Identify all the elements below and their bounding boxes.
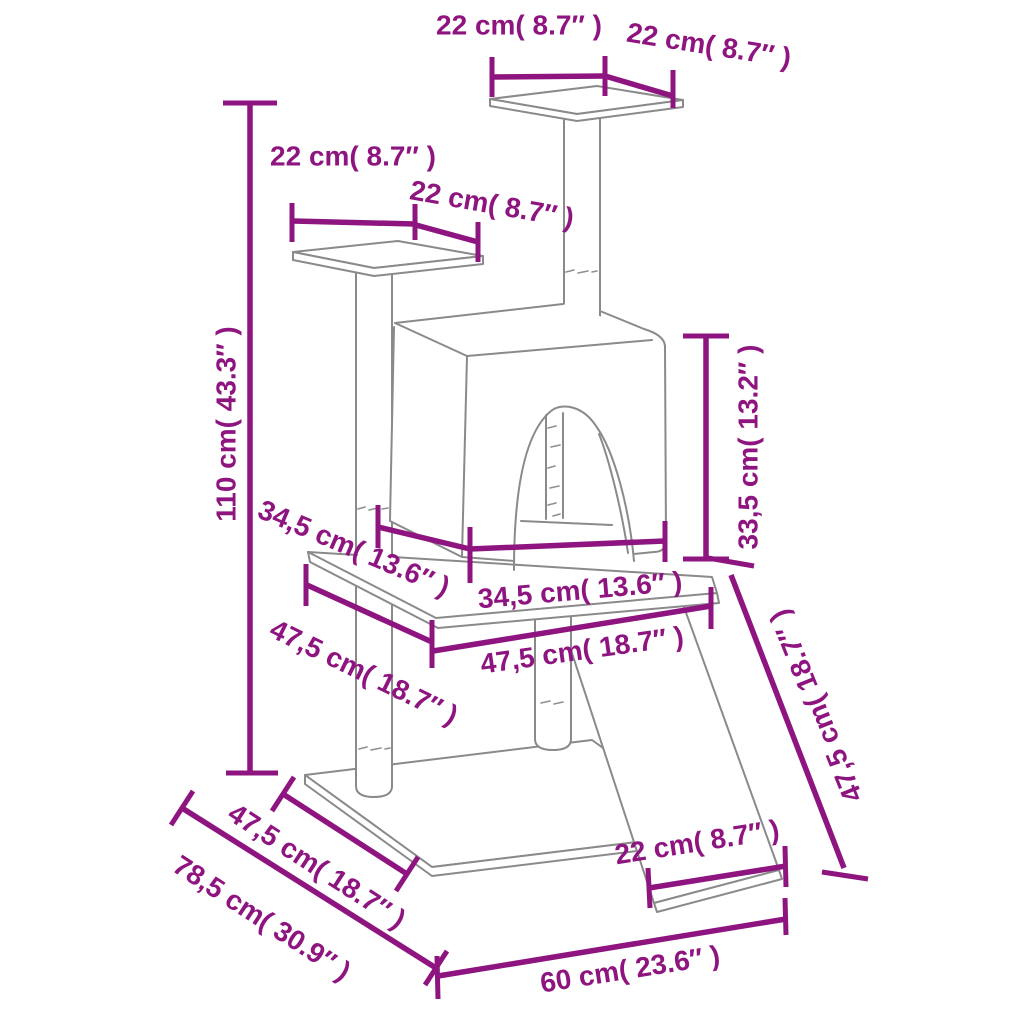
dim-label-left-platform-width: 22 cm( 8.7″ )	[270, 141, 436, 172]
dim-label-top-platform-width: 22 cm( 8.7″ )	[436, 10, 602, 41]
dim-base-width: 60 cm( 23.6″ )	[437, 898, 786, 999]
middle-scratching-post	[535, 598, 571, 750]
cat-tree-dimension-diagram: 22 cm( 8.7″ ) 22 cm( 8.7″ ) 22 cm( 8.7″ …	[0, 0, 1024, 1024]
dim-label-total-height: 110 cm( 43.3″ )	[211, 326, 242, 522]
dim-label-base-width: 60 cm( 23.6″ )	[538, 939, 722, 998]
dim-label-left-platform-depth: 22 cm( 8.7″ )	[408, 174, 577, 233]
dim-label-house-height: 33,5 cm( 13.2″ )	[733, 345, 764, 550]
dim-top-platform-width: 22 cm( 8.7″ )	[436, 10, 605, 98]
cat-house	[389, 304, 667, 570]
dim-label-top-platform-depth: 22 cm( 8.7″ )	[625, 17, 794, 74]
dim-house-height: 33,5 cm( 13.2″ )	[683, 336, 764, 559]
left-platform	[293, 241, 483, 276]
diagram-canvas: 22 cm( 8.7″ ) 22 cm( 8.7″ ) 22 cm( 8.7″ …	[0, 0, 1024, 1024]
dim-total-height: 110 cm( 43.3″ )	[211, 103, 279, 773]
